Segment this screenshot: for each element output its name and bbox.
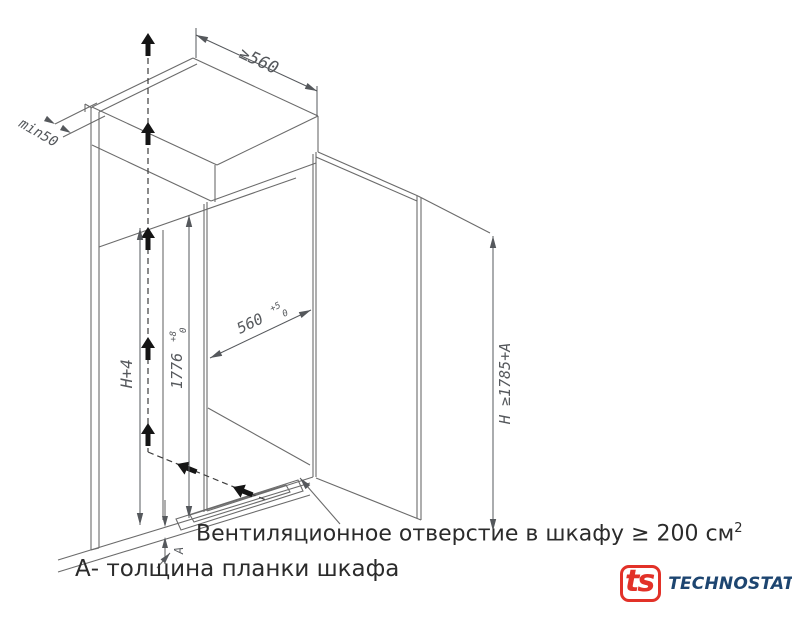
dim-height-plus-label: H+4 [117, 359, 136, 389]
logo-ts-icon: ts [620, 565, 661, 602]
installation-diagram: ≥560 min50 H+4 1776 +8 0 560 +5 0 H ≥178… [0, 0, 792, 640]
vent-caption-text: Вентиляционное отверстие в шкафу ≥ 200 с… [196, 521, 734, 546]
dim-total-height-label: H ≥1785+A [496, 343, 514, 425]
dim-inner-height-label: 1776 +8 0 [162, 322, 189, 389]
cabinet-wireframe [55, 58, 490, 572]
vent-caption: Вентиляционное отверстие в шкафу ≥ 200 с… [196, 521, 742, 546]
vent-caption-sup: 2 [734, 521, 742, 536]
technostatus-logo: ts TECHNOSTATUS [620, 565, 792, 602]
dim-wall-gap-label: min50 [15, 115, 60, 150]
plank-legend: А- толщина планки шкафа [75, 556, 399, 582]
logo-name: TECHNOSTATUS [668, 574, 792, 594]
airflow-arrows [141, 33, 255, 501]
dimension-arrowheads [44, 32, 496, 563]
dim-plank-label: A [172, 547, 186, 555]
dim-top-width-label: ≥560 [236, 43, 282, 78]
